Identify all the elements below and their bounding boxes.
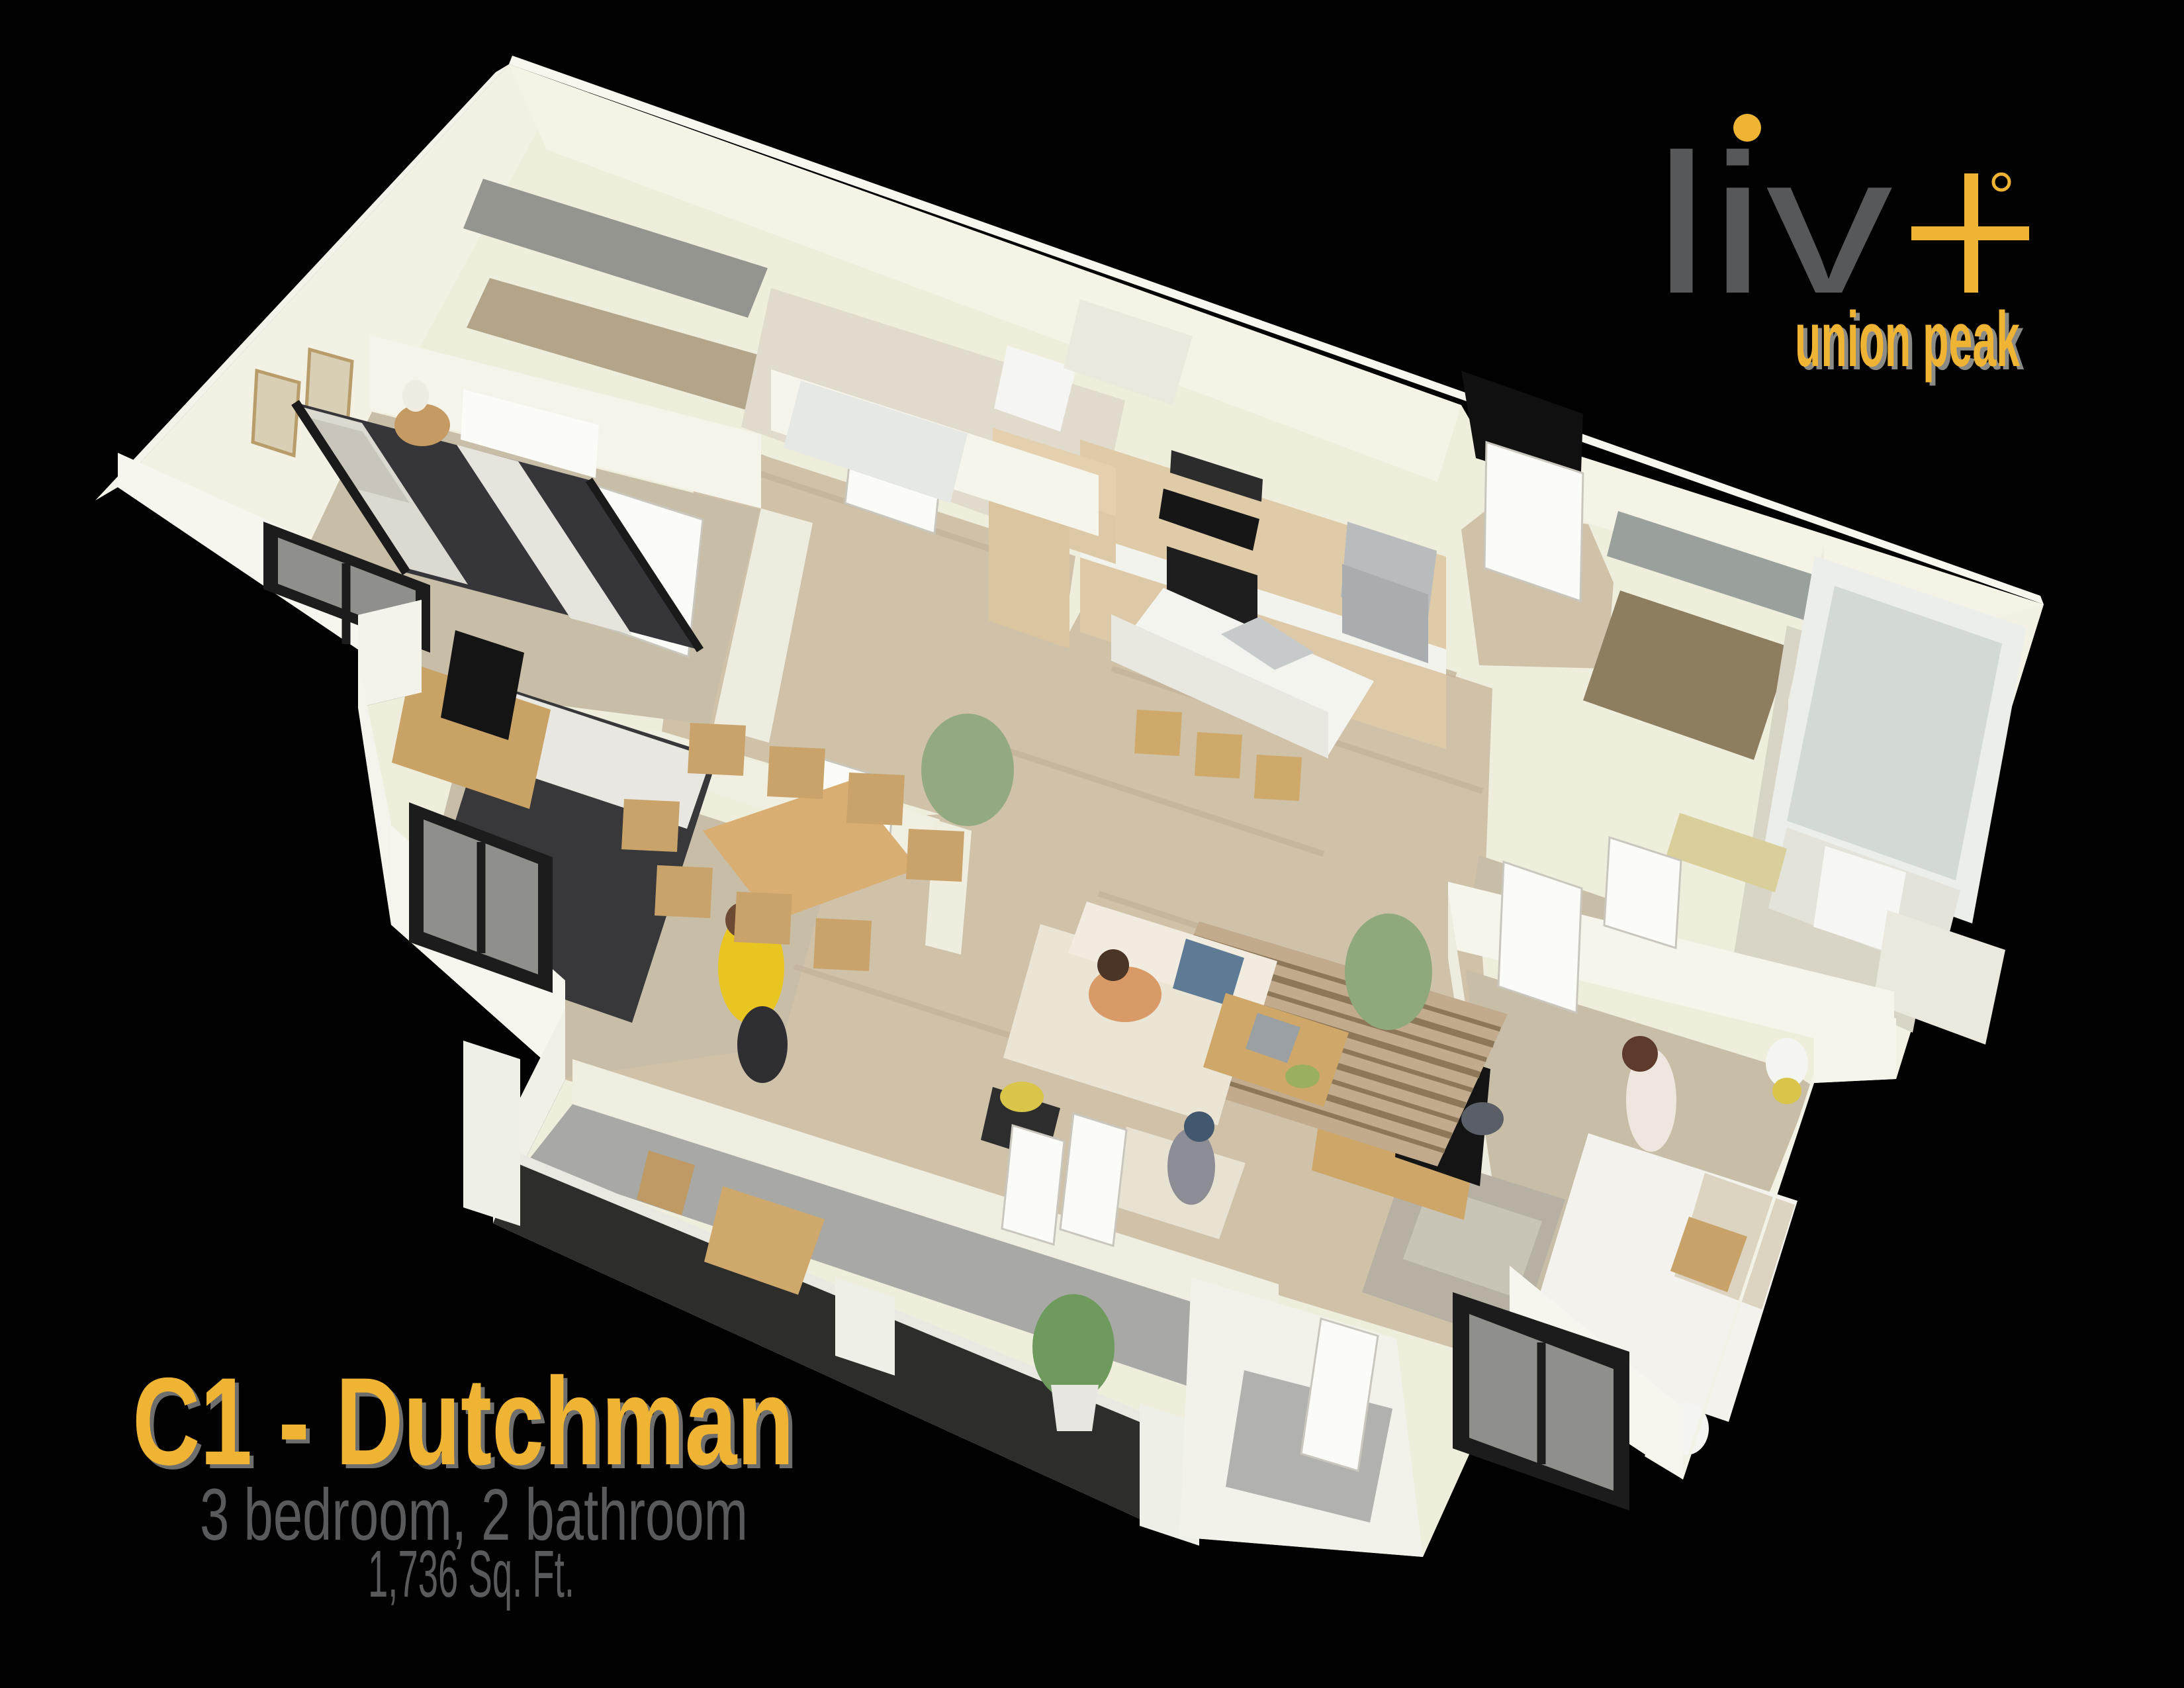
svg-text:union peak: union peak — [1795, 296, 2020, 383]
svg-text:1,736 Sq. Ft.: 1,736 Sq. Ft. — [368, 1537, 574, 1611]
svg-text:C1 - Dutchman: C1 - Dutchman — [132, 1352, 794, 1491]
